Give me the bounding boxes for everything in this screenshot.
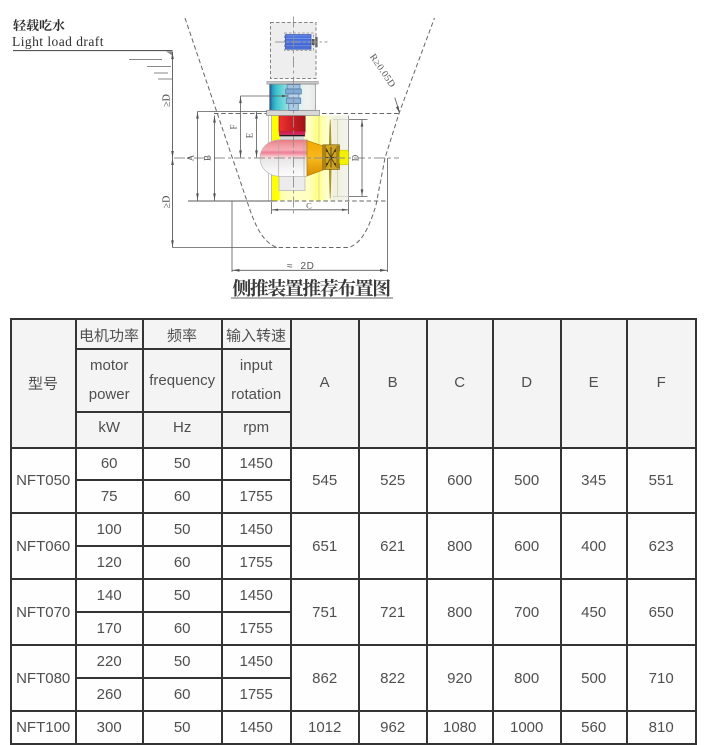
svg-text:E: E	[245, 132, 255, 138]
svg-text:≈: ≈	[287, 261, 293, 272]
svg-text:F: F	[229, 124, 239, 129]
svg-text:C: C	[306, 201, 312, 211]
svg-text:≥D: ≥D	[162, 94, 173, 107]
svg-text:Light load draft: Light load draft	[12, 34, 104, 49]
svg-text:D: D	[351, 154, 361, 161]
svg-text:≥D: ≥D	[162, 196, 173, 209]
svg-text:B: B	[203, 155, 213, 161]
svg-text:R≥0.05D: R≥0.05D	[367, 52, 397, 90]
svg-text:2D: 2D	[301, 261, 315, 272]
svg-text:A: A	[186, 154, 196, 161]
